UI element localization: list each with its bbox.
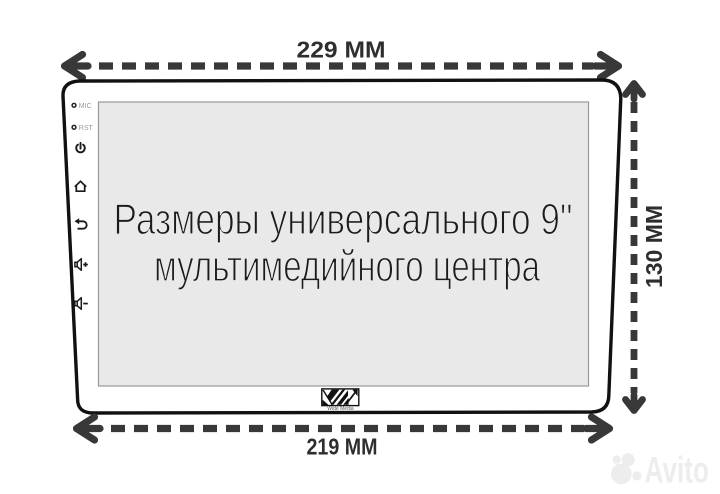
svg-text:Avito: Avito bbox=[645, 450, 710, 491]
svg-text:мультимедийного центра: мультимедийного центра bbox=[154, 242, 540, 291]
svg-text:229 MM: 229 MM bbox=[297, 37, 386, 63]
svg-text:219 MM: 219 MM bbox=[307, 434, 378, 460]
svg-text:130 MM: 130 MM bbox=[641, 205, 667, 288]
svg-text:MIC: MIC bbox=[79, 103, 92, 110]
svg-text:Размеры универсального 9": Размеры универсального 9" bbox=[114, 195, 573, 244]
svg-text:Wide Media: Wide Media bbox=[327, 406, 354, 412]
svg-text:RST: RST bbox=[79, 125, 94, 132]
